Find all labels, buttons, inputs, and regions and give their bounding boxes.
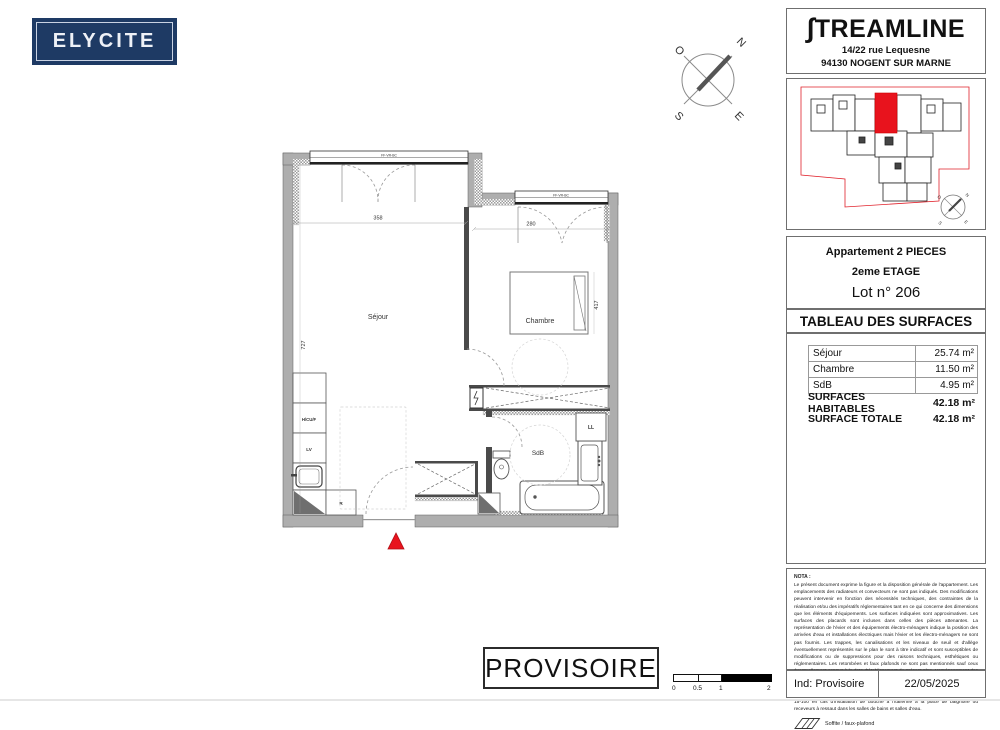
legend-label: Soffite / faux-plafond: [825, 721, 874, 727]
sejour-window: FF-VR-BC: [310, 151, 468, 165]
total-value: 42.18 m²: [917, 413, 978, 425]
site-compass-o: O: [936, 194, 942, 200]
site-compass: N O S E: [936, 192, 970, 226]
scale-midtick: [698, 675, 699, 681]
apartment-type: Appartement 2 PIECES: [787, 246, 985, 258]
table-row: Séjour 25.74 m²: [808, 345, 978, 362]
room-label-sejour: Séjour: [368, 314, 389, 321]
brand-address-line2: 94130 NOGENT SUR MARNE: [787, 58, 985, 71]
dimensions: [291, 159, 610, 513]
apartment-info-box: Appartement 2 PIECES 2eme ETAGE Lot n° 2…: [786, 236, 986, 309]
site-compass-e: E: [963, 219, 969, 225]
scale-bar-segments: [673, 674, 772, 682]
chambre-window: FF-VR-BC: [515, 191, 608, 205]
toilet-icon: [493, 451, 510, 479]
floor-plan: FF-VR-BC FF-VR-BC: [278, 145, 623, 557]
compass-n: N: [734, 36, 748, 50]
washing-machine-box: LL: [576, 413, 606, 441]
compass-e: E: [732, 110, 746, 124]
row-label: Chambre: [809, 364, 915, 375]
chambre-window-label: FF-VR-BC: [553, 194, 569, 198]
brand-address-line1: 14/22 rue Lequesne: [787, 45, 985, 58]
compass-s: S: [672, 110, 686, 124]
dim-left: 727: [301, 340, 307, 349]
provisoire-stamp: PROVISOIRE: [483, 647, 659, 689]
provisoire-stamp-text: PROVISOIRE: [485, 653, 657, 684]
row-label: SdB: [809, 380, 915, 391]
hcuf-label: H/CU/F: [302, 417, 317, 422]
site-compass-n: N: [964, 192, 970, 198]
apartment-lot: Lot n° 206: [787, 284, 985, 301]
table-row: Chambre 11.50 m²: [808, 362, 978, 378]
surfaces-title: TABLEAU DES SURFACES: [800, 314, 972, 329]
dim-sejour: 358: [373, 216, 382, 222]
exterior-walls: [283, 153, 618, 527]
elycite-logo: ELYCITE: [32, 18, 177, 65]
soffit-legend-icon: [794, 717, 821, 730]
sejour-window-label: FF-VR-BC: [381, 154, 397, 158]
surfaces-title-box: TABLEAU DES SURFACES: [786, 309, 986, 333]
scale-label-05: 0.5: [693, 685, 702, 692]
nota-title: NOTA :: [794, 574, 978, 580]
site-plan: N O S E: [787, 79, 985, 229]
room-label-chambre: Chambre: [526, 318, 555, 325]
scale-bar: 0 0.5 1 2: [673, 674, 772, 694]
nota-box: NOTA : Le présent document exprime la fi…: [786, 568, 986, 670]
row-value: 25.74 m²: [915, 346, 977, 361]
table-total-row: SURFACE TOTALE 42.18 m²: [808, 411, 978, 426]
washbasin-icon: [578, 441, 602, 485]
scale-label-1: 1: [719, 685, 723, 692]
brand-box: ∫TREAMLINE 14/22 rue Lequesne 94130 NOGE…: [786, 8, 986, 74]
plan-date: 22/05/2025: [879, 671, 985, 697]
site-plan-box: N O S E: [786, 78, 986, 230]
scale-segment-black: [722, 674, 772, 682]
entrance-threshold: [363, 519, 415, 520]
kitchen-units: [293, 373, 356, 515]
scale-segment-white: [673, 674, 722, 682]
elycite-logo-text: ELYCITE: [53, 30, 157, 53]
streamline-logo: ∫TREAMLINE: [787, 13, 985, 44]
title-block-footer: Ind: Provisoire 22/05/2025: [786, 670, 986, 698]
scale-label-0: 0: [672, 685, 676, 692]
scale-label-2: 2: [767, 685, 771, 692]
lv-label: LV: [306, 447, 312, 452]
streamline-logo-rest: TREAMLINE: [815, 15, 965, 43]
legend-row: Soffite / faux-plafond: [794, 717, 978, 730]
total-label: SURFACE TOTALE: [808, 413, 917, 425]
row-value: 11.50 m²: [915, 362, 977, 377]
total-value: 42.18 m²: [917, 397, 978, 409]
compass-rose: N O S E: [662, 24, 758, 126]
kitchen-sink-icon: [291, 466, 322, 487]
dim-chambre: 280: [526, 222, 535, 228]
revision-index: Ind: Provisoire: [787, 671, 879, 697]
technical-shaft2-icon: [478, 493, 500, 514]
streamline-logo-s: ∫: [807, 13, 815, 43]
entrance-marker-icon: [388, 533, 404, 549]
row-label: Séjour: [809, 348, 915, 359]
compass-needle-icon: [698, 56, 730, 90]
bathtub-icon: [520, 481, 604, 514]
page-bottom-edge: [0, 699, 1000, 701]
dim-bed: 417: [594, 300, 600, 309]
surfaces-table: Séjour 25.74 m² Chambre 11.50 m² SdB 4.9…: [808, 345, 978, 426]
site-highlighted-unit: [875, 93, 897, 133]
site-compass-s: S: [937, 220, 943, 226]
ll-label: LL: [588, 425, 594, 431]
apartment-floor: 2eme ETAGE: [787, 266, 985, 278]
surfaces-table-box: Séjour 25.74 m² Chambre 11.50 m² SdB 4.9…: [786, 333, 986, 564]
row-value: 4.95 m²: [915, 378, 977, 393]
table-total-row: SURFACES HABITABLES 42.18 m²: [808, 395, 978, 410]
total-label: SURFACES HABITABLES: [808, 391, 917, 415]
electrical-panel-icon: [470, 388, 483, 408]
room-label-sdb: SdB: [532, 450, 544, 457]
